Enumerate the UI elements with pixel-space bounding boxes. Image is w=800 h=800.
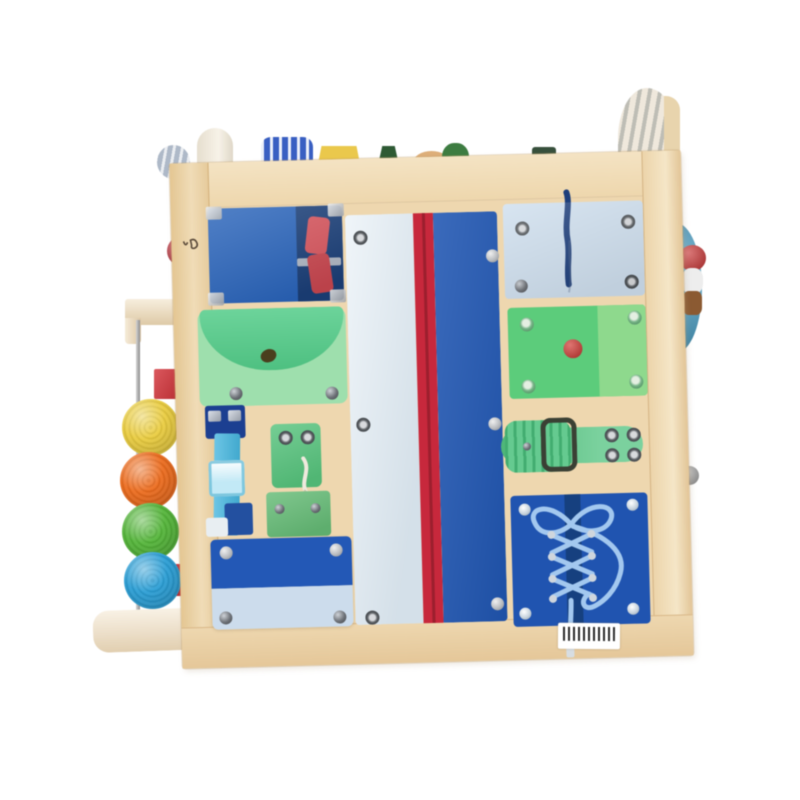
pouch-rivet <box>325 386 338 399</box>
anchor-rivet <box>228 410 241 421</box>
barcode-bars <box>563 627 615 641</box>
watch-buckle <box>540 417 577 472</box>
corner-cap <box>206 206 222 219</box>
buckle-bottom-piece <box>224 503 253 536</box>
button-panel-rivet <box>521 379 535 393</box>
wood-logo-mark <box>181 237 203 254</box>
clip-panel-underlay <box>296 205 344 301</box>
abacus-ball-yellow <box>122 399 179 456</box>
cord-panel-rivet <box>515 221 529 235</box>
pouch-rivet <box>229 387 242 400</box>
board-top-rail <box>169 150 681 208</box>
busy-board-front-face <box>169 150 693 668</box>
corner-cap <box>208 292 224 305</box>
peg-figure-base <box>683 291 702 315</box>
anchor-rivet <box>208 411 221 422</box>
abacus-ball-orange <box>120 452 177 509</box>
pouch-flap <box>199 306 345 372</box>
pull-cord <box>552 192 585 298</box>
corner-cap <box>328 203 344 216</box>
lacing-panel <box>510 492 650 627</box>
button-panel <box>507 304 647 399</box>
zipper-panel <box>345 211 508 625</box>
snap-bottom-tab <box>266 491 331 538</box>
clip-panel <box>208 205 344 303</box>
cord-panel-rivet <box>621 215 635 229</box>
zipper-panel-left <box>345 213 424 625</box>
cord-panel-rivet <box>515 279 528 292</box>
shoe-lace <box>510 492 650 627</box>
buckle-frame <box>208 460 245 497</box>
red-button <box>563 339 582 358</box>
watch-strap-assembly <box>498 415 647 477</box>
red-clip-top <box>304 216 330 255</box>
flap-pocket-panel <box>210 536 353 630</box>
product-photo-scene <box>0 0 800 800</box>
buckle-strap-assembly <box>205 405 255 541</box>
cord-panel-rivet <box>625 275 639 289</box>
snap-hook-assembly <box>264 408 337 538</box>
corner-cap <box>330 289 346 302</box>
button-pouch-panel <box>197 308 347 407</box>
strap-rivet <box>627 448 641 462</box>
button-panel-rivet <box>520 317 534 331</box>
red-clip-bottom <box>307 252 335 294</box>
cord-panel <box>503 200 645 299</box>
abacus-ball-blue <box>124 552 181 609</box>
clip-panel-bar <box>297 257 341 266</box>
pocket-bottom <box>212 585 354 630</box>
buckle-white-tab <box>206 517 228 537</box>
